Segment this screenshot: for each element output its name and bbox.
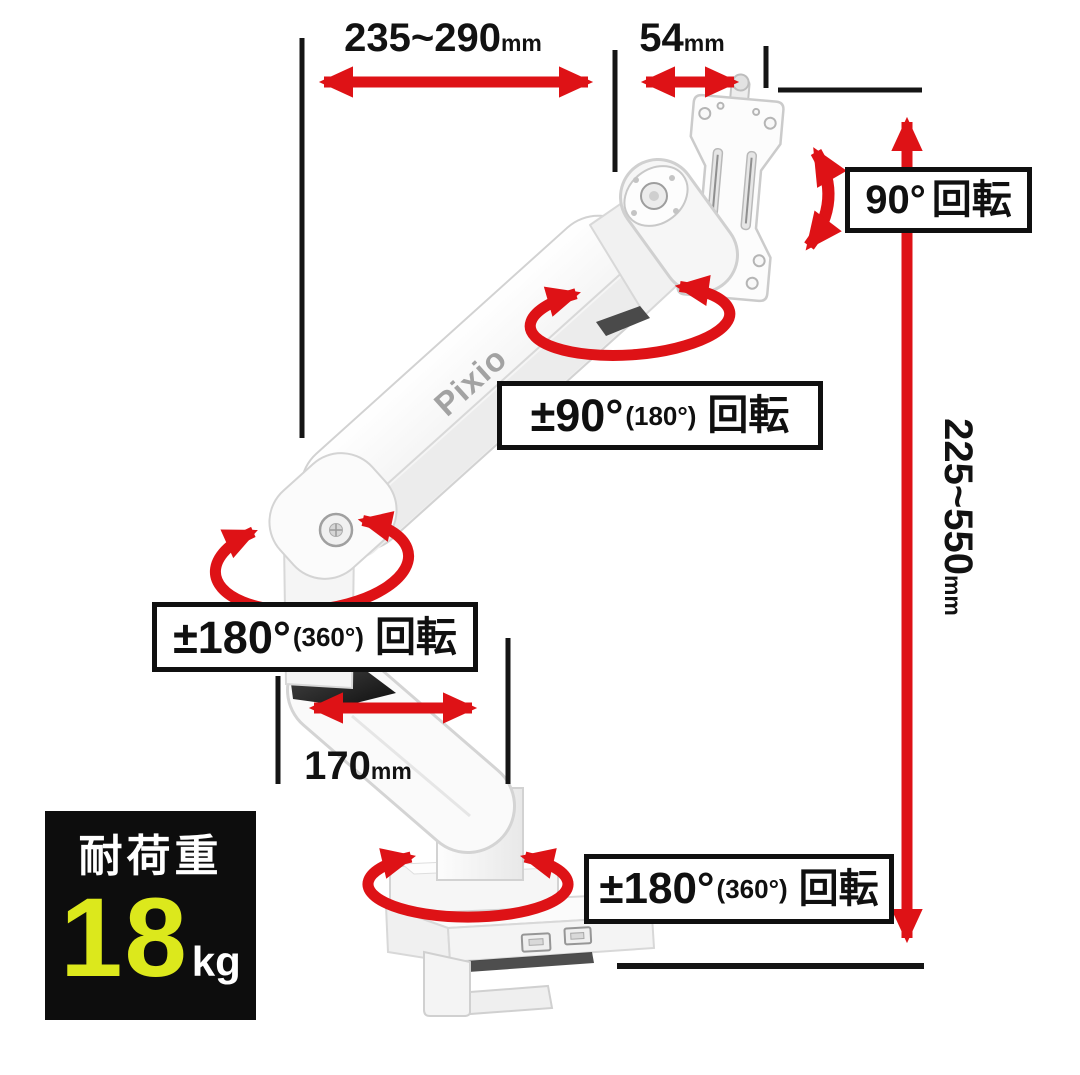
- rotation-label: 回転: [799, 869, 879, 909]
- label-monitor-pivot: 90°回転: [845, 167, 1032, 233]
- load-capacity-unit: kg: [192, 941, 241, 983]
- dimension-value: 170: [304, 744, 371, 788]
- dimension-unit: mm: [940, 575, 966, 616]
- rotation-paren: (360°): [293, 624, 364, 650]
- dimension-vesa-depth: 54mm: [602, 16, 762, 61]
- rotation-label: 回転: [707, 395, 789, 436]
- rotation-angle: ±90°: [531, 393, 624, 438]
- dimension-arm-extension: 235~290mm: [318, 16, 568, 61]
- dimension-base-arm: 170mm: [283, 744, 433, 789]
- dimension-unit: mm: [371, 758, 412, 784]
- rotation-angle: ±180°: [173, 615, 291, 660]
- load-capacity-badge: 耐荷重 18 kg: [45, 811, 256, 1020]
- rotation-paren: (360°): [717, 876, 788, 902]
- label-elbow-swivel: ±180°(360°)回転: [152, 602, 478, 672]
- dimension-unit: mm: [501, 30, 542, 56]
- dimension-height-range: 225~550mm: [934, 372, 980, 662]
- load-capacity-label: 耐荷重: [79, 835, 223, 879]
- rotation-angle: 90°: [865, 180, 926, 220]
- dimension-value: 235~290: [344, 16, 501, 60]
- dimension-unit: mm: [684, 30, 725, 56]
- dimension-value: 54: [639, 16, 684, 60]
- dimension-value: 225~550: [936, 418, 980, 575]
- label-upper-swivel: ±90°(180°)回転: [497, 381, 823, 450]
- rotation-label: 回転: [932, 180, 1012, 220]
- clamp-bracket: [424, 952, 470, 1016]
- rotation-angle: ±180°: [599, 867, 714, 911]
- label-base-swivel: ±180°(360°)回転: [584, 854, 894, 924]
- load-capacity-value: 18: [60, 885, 189, 991]
- rotation-label: 回転: [375, 617, 457, 658]
- arc-monitor-pivot: [809, 152, 828, 246]
- product-spec-diagram: 235~290mm 54mm 225~550mm 170mm 90°回転 ±90…: [0, 0, 1080, 1075]
- rotation-paren: (180°): [625, 403, 696, 429]
